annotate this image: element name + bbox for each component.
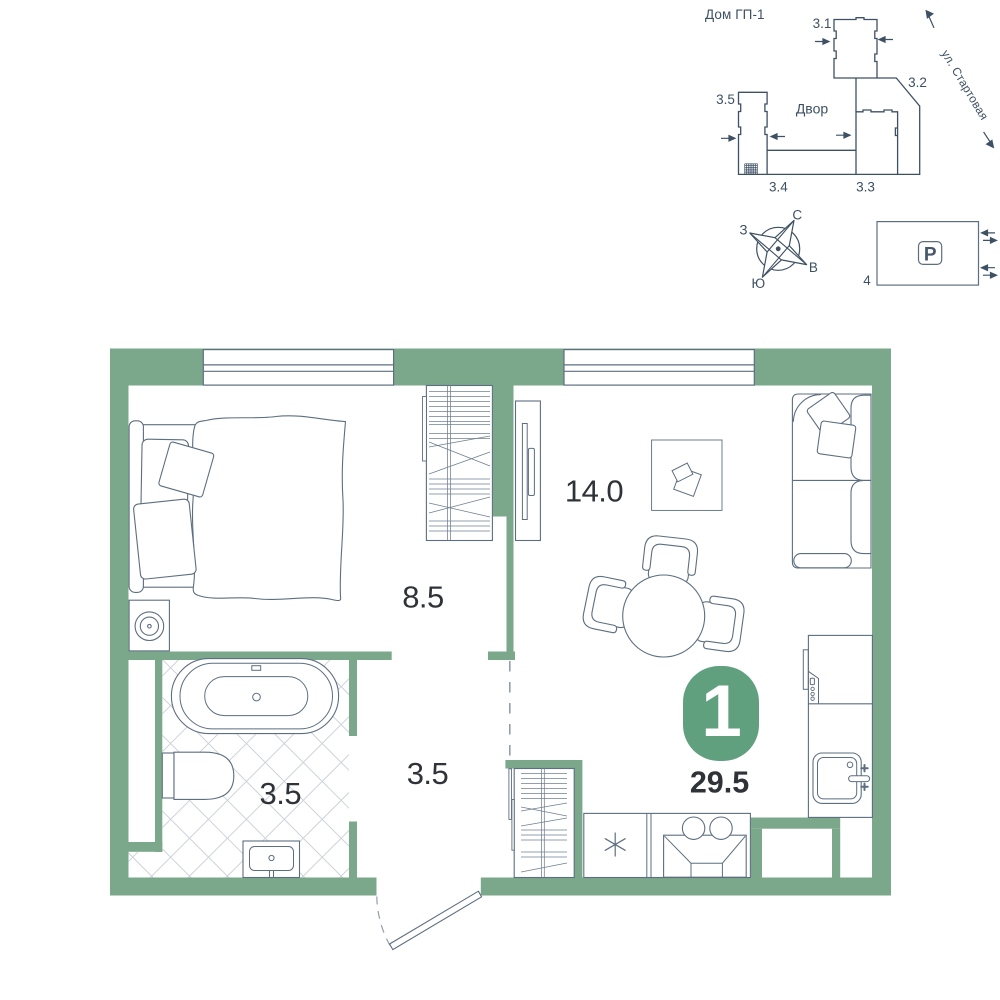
svg-text:29.5: 29.5 <box>690 766 749 800</box>
svg-text:Дом ГП-1: Дом ГП-1 <box>705 7 765 22</box>
svg-text:3.3: 3.3 <box>856 180 875 195</box>
svg-text:3.5: 3.5 <box>716 92 735 107</box>
svg-text:8.5: 8.5 <box>402 580 444 615</box>
svg-text:1: 1 <box>701 671 742 752</box>
svg-text:14.0: 14.0 <box>565 473 624 508</box>
svg-text:3.1: 3.1 <box>813 16 832 31</box>
svg-text:В: В <box>809 260 818 275</box>
svg-text:3.2: 3.2 <box>908 75 927 90</box>
svg-text:3.5: 3.5 <box>407 756 449 791</box>
svg-text:Двор: Двор <box>796 101 829 117</box>
svg-text:С: С <box>792 208 802 223</box>
svg-text:ул. Стартовая: ул. Стартовая <box>939 47 992 122</box>
svg-text:P: P <box>924 244 937 265</box>
svg-text:3.4: 3.4 <box>769 180 788 195</box>
svg-text:4: 4 <box>863 273 871 288</box>
svg-text:3.5: 3.5 <box>259 776 301 811</box>
svg-text:З: З <box>739 223 747 238</box>
svg-text:Ю: Ю <box>751 276 765 291</box>
